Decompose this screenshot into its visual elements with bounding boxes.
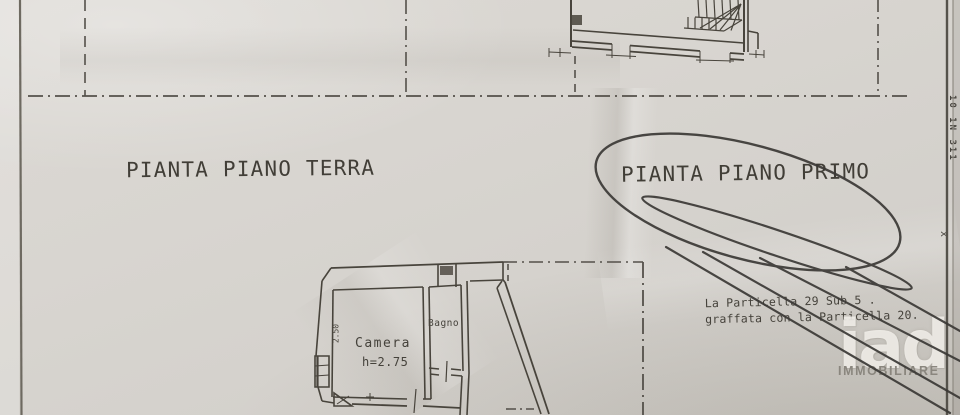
wall-dimension-label: 2.50 [332, 319, 341, 349]
edge-stamp-text: 10 1N 311 [947, 95, 957, 162]
upper-floor-plan [549, 0, 764, 63]
paper-highlight [0, 0, 960, 415]
boundary-dash-lines [28, 0, 912, 415]
camera-height-label: h=2.75 [362, 355, 408, 369]
bagno-room-label: Bagno [428, 318, 459, 329]
door-hinge-block [572, 15, 582, 25]
edge-mark: x [938, 231, 949, 237]
first-floor-title: PIANTA PIANO PRIMO [621, 159, 870, 186]
camera-room-label: Camera [355, 336, 411, 351]
paper-crease [222, 206, 539, 415]
window-block [315, 356, 329, 387]
flue-block [440, 266, 453, 275]
page-edge-lines [20, 0, 953, 415]
door-triangle [334, 393, 352, 406]
watermark-agency-name: IMMOBILIARE [838, 364, 940, 378]
window-sills [549, 44, 764, 63]
paper-crease [60, 20, 620, 90]
plan-linework [0, 0, 960, 415]
staircase [684, 0, 742, 31]
ground-floor-title: PIANTA PIANO TERRA [126, 156, 375, 183]
scanned-floor-plan-page: PIANTA PIANO TERRA PIANTA PIANO PRIMO Ca… [0, 0, 960, 415]
page-right-margin [953, 0, 960, 415]
page-left-margin [0, 0, 19, 415]
lower-floor-plan [315, 262, 549, 415]
paper-corner-shadow [0, 0, 960, 415]
